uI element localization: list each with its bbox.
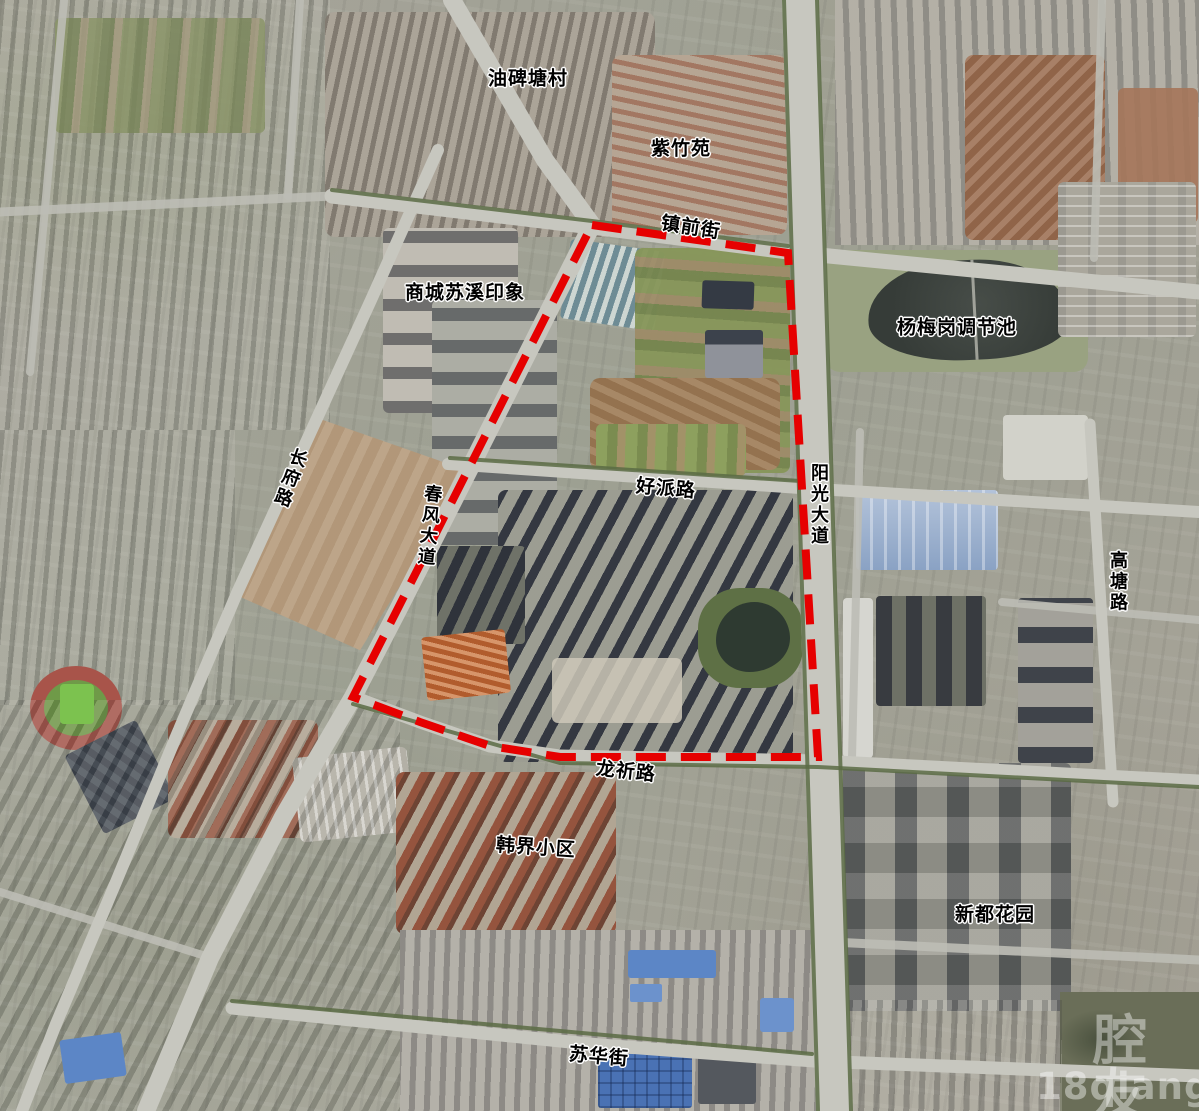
label-yangmeigang-pond: 杨梅岗调节池 xyxy=(897,313,1017,340)
school-building xyxy=(705,330,763,378)
label-suhua-street: 苏华街 xyxy=(568,1039,630,1071)
label-gaotang-road: 高塘路 xyxy=(1104,551,1130,614)
blue-roof-factory xyxy=(856,490,998,570)
label-haopai-road: 好派路 xyxy=(635,471,697,503)
construction-dark-buildings xyxy=(437,546,525,644)
farm-fields-top-left xyxy=(55,18,265,133)
satellite-map: 油碑塘村 紫竹苑 镇前街 商城苏溪印象 杨梅岗调节池 长府路 春风大道 好派路 … xyxy=(0,0,1199,1111)
construction-orange-site xyxy=(421,629,511,701)
label-hanjie-residential: 韩界小区 xyxy=(495,830,577,863)
light-courtyard xyxy=(552,658,682,723)
urban-blocks-left xyxy=(0,430,235,705)
blue-roof-workshop-3 xyxy=(760,998,794,1032)
dark-factory-roofs xyxy=(876,596,986,706)
label-xindu-garden: 新都花园 xyxy=(955,900,1035,927)
white-building xyxy=(1003,415,1088,480)
xindu-garden-towers xyxy=(843,763,1071,1011)
label-yangguang-avenue: 阳光大道 xyxy=(805,463,831,547)
watermark-site: 18qiang.com xyxy=(1036,1068,1199,1105)
gray-tower-rows-right xyxy=(1018,598,1093,763)
youbeitang-village-area xyxy=(325,12,655,237)
label-youbeitang-village: 油碑塘村 xyxy=(488,64,568,91)
blue-roof-workshop-1 xyxy=(628,950,716,978)
sports-courts xyxy=(60,684,94,724)
vegetable-plots xyxy=(596,424,746,476)
dark-workshop xyxy=(698,1056,756,1104)
white-building-row xyxy=(843,598,873,758)
parking-lot-right xyxy=(1058,182,1196,337)
blue-roof-workshop-2 xyxy=(630,984,662,1002)
label-zizhu-court: 紫竹苑 xyxy=(651,134,711,161)
urban-blocks-bottom-right xyxy=(832,1000,1062,1111)
label-shangcheng-suxi-impression: 商城苏溪印象 xyxy=(405,278,525,305)
dark-roof-building xyxy=(702,280,755,310)
blue-roof-workshop-4 xyxy=(59,1032,127,1084)
